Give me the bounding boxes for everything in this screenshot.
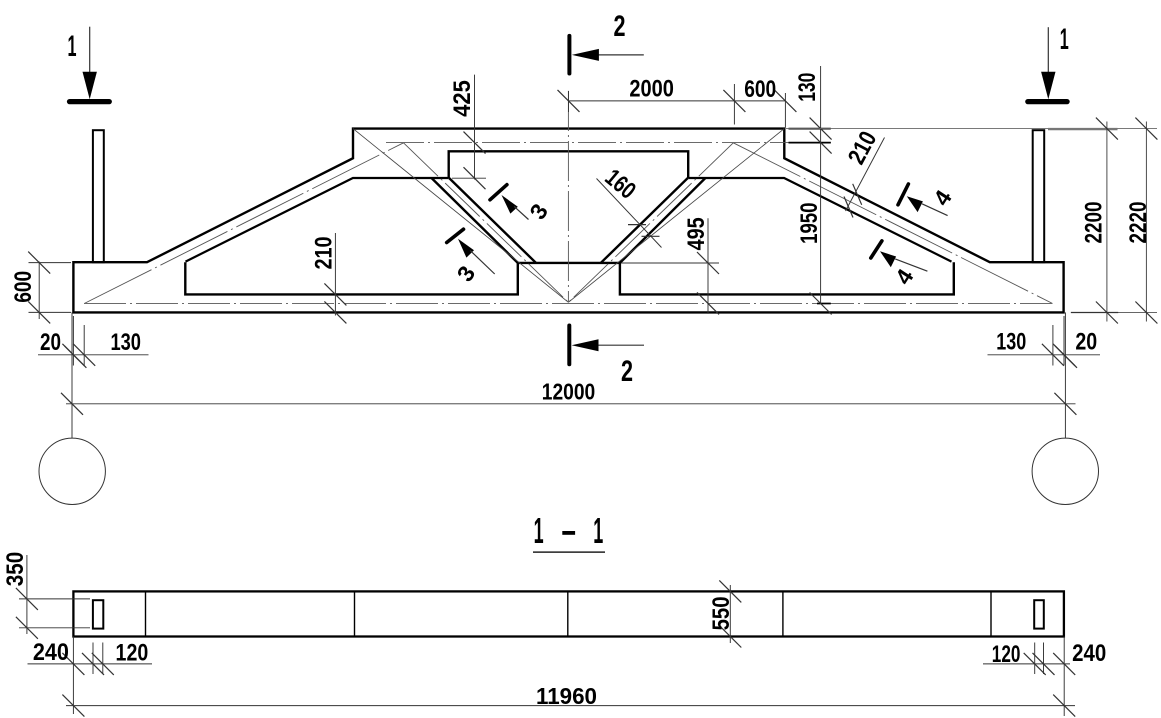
svg-text:11960: 11960: [536, 683, 597, 709]
svg-text:1: 1: [1060, 23, 1069, 56]
svg-text:2000: 2000: [629, 75, 674, 102]
svg-text:350: 350: [2, 552, 29, 587]
svg-text:210: 210: [311, 237, 338, 270]
svg-text:12000: 12000: [542, 378, 596, 404]
svg-text:130: 130: [110, 329, 141, 356]
svg-text:550: 550: [708, 596, 735, 630]
svg-text:2200: 2200: [1081, 202, 1108, 244]
svg-text:240: 240: [1072, 640, 1106, 667]
svg-text:600: 600: [744, 76, 776, 103]
svg-text:425: 425: [449, 80, 476, 117]
svg-text:130: 130: [996, 329, 1026, 356]
svg-text:2: 2: [614, 10, 626, 43]
svg-text:1: 1: [593, 510, 603, 551]
svg-text:600: 600: [10, 271, 37, 303]
svg-text:120: 120: [992, 641, 1021, 668]
svg-text:1950: 1950: [796, 203, 823, 244]
svg-text:495: 495: [683, 217, 710, 250]
svg-text:1: 1: [68, 30, 77, 63]
svg-text:240: 240: [33, 639, 69, 666]
svg-text:130: 130: [794, 73, 821, 102]
svg-text:2: 2: [621, 355, 633, 388]
svg-text:20: 20: [1075, 328, 1097, 355]
svg-text:20: 20: [40, 329, 61, 356]
svg-text:1: 1: [534, 510, 544, 551]
svg-text:120: 120: [116, 639, 149, 666]
svg-text:2220: 2220: [1125, 202, 1152, 244]
